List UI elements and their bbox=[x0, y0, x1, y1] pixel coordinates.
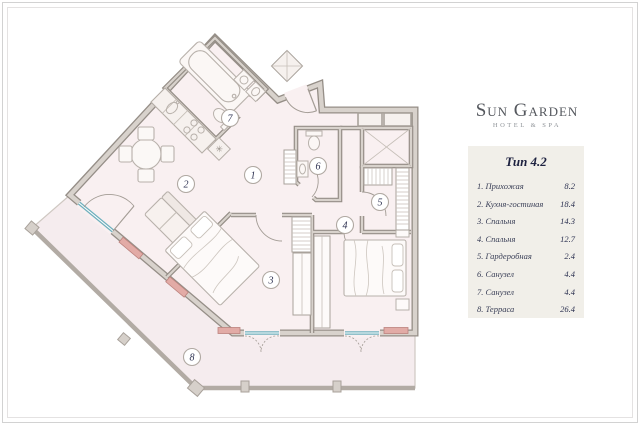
svg-text:4: 4 bbox=[343, 221, 348, 232]
room-label-4: 4 bbox=[337, 217, 354, 234]
area-row: 8. Терраса 26.4 bbox=[477, 304, 575, 314]
room-area: 26.4 bbox=[560, 304, 575, 314]
area-row: 3. Спальня 14.3 bbox=[477, 216, 575, 226]
room-area: 14.3 bbox=[560, 216, 575, 226]
room-name: 6. Санузел bbox=[477, 269, 514, 279]
brand-tagline: HOTEL & SPA bbox=[462, 122, 592, 129]
room-area: 4.4 bbox=[564, 287, 575, 297]
room-label-7: 7 bbox=[222, 110, 239, 127]
type-card: Тип 4.2 1. Прихожая 8.2 2. Кухня-гостина… bbox=[468, 146, 584, 318]
closet-room3 bbox=[292, 217, 311, 315]
room-name: 2. Кухня-гостиная bbox=[477, 199, 543, 209]
floorplan-page: ✳ bbox=[0, 0, 640, 425]
svg-text:1: 1 bbox=[251, 171, 256, 182]
room-label-6: 6 bbox=[310, 158, 327, 175]
room-area: 8.2 bbox=[564, 181, 575, 191]
room-name: 8. Терраса bbox=[477, 304, 514, 314]
wardrobe-room4 bbox=[314, 236, 330, 328]
room-area: 12.7 bbox=[560, 234, 575, 244]
room-area: 18.4 bbox=[560, 199, 575, 209]
svg-text:2: 2 bbox=[184, 180, 189, 191]
closet-row bbox=[358, 113, 411, 126]
area-row: 4. Спальня 12.7 bbox=[477, 234, 575, 244]
area-row: 1. Прихожая 8.2 bbox=[477, 181, 575, 191]
room-label-5: 5 bbox=[372, 194, 389, 211]
svg-text:8: 8 bbox=[190, 353, 195, 364]
shaft-hatch-hall bbox=[284, 150, 296, 184]
svg-text:3: 3 bbox=[268, 276, 274, 287]
room-name: 4. Спальня bbox=[477, 234, 515, 244]
room-label-2: 2 bbox=[178, 176, 195, 193]
room-label-3: 3 bbox=[263, 272, 280, 289]
shaft-hatch-top bbox=[271, 50, 302, 81]
room-name: 7. Санузел bbox=[477, 287, 514, 297]
room-label-8: 8 bbox=[184, 349, 201, 366]
svg-text:6: 6 bbox=[316, 162, 321, 173]
type-title: Тип 4.2 bbox=[477, 154, 575, 170]
room-name: 3. Спальня bbox=[477, 216, 515, 226]
room-area: 2.4 bbox=[564, 251, 575, 261]
room-area: 4.4 bbox=[564, 269, 575, 279]
area-row: 7. Санузел 4.4 bbox=[477, 287, 575, 297]
room-label-1: 1 bbox=[245, 167, 262, 184]
floor-plan: ✳ bbox=[0, 0, 460, 425]
sink-6 bbox=[297, 161, 308, 177]
room-name: 1. Прихожая bbox=[477, 181, 524, 191]
room-name: 5. Гардеробная bbox=[477, 251, 532, 261]
svg-text:5: 5 bbox=[378, 198, 383, 209]
area-row: 5. Гардеробная 2.4 bbox=[477, 251, 575, 261]
brand-logo: Sun Garden HOTEL & SPA bbox=[462, 101, 592, 129]
area-row: 6. Санузел 4.4 bbox=[477, 269, 575, 279]
area-row: 2. Кухня-гостиная 18.4 bbox=[477, 199, 575, 209]
brand-name: Sun Garden bbox=[462, 101, 592, 121]
